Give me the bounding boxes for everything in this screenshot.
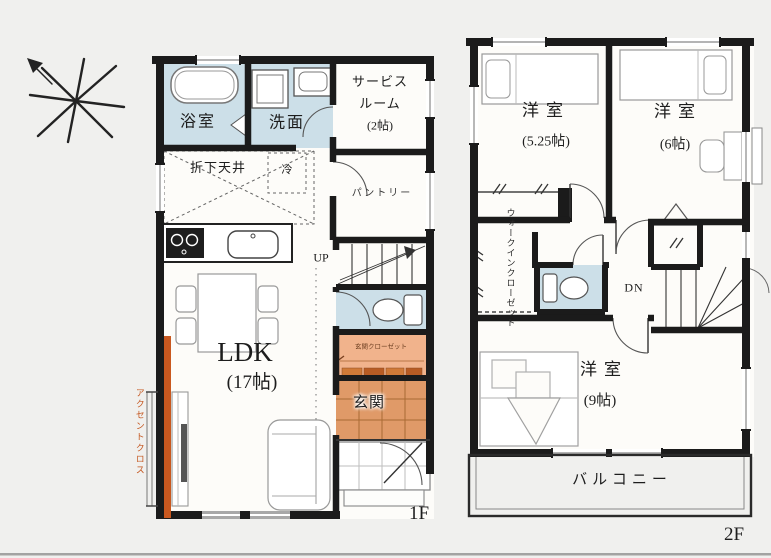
label-fridge: 冷 (282, 165, 293, 177)
room-label-bedroom3: 洋室 (580, 361, 628, 379)
label-dropped-ceiling: 折下天井 (190, 161, 246, 175)
room-label-bedroom1: 洋室 (522, 102, 570, 120)
room-label-bedroom2-size: (6帖) (660, 139, 690, 154)
room-label-bedroom1-size: (5.25帖) (522, 136, 570, 151)
room-label-washroom: 洗面 (269, 116, 305, 133)
label-stairs-down: DN (624, 282, 643, 295)
room-label-service-3: (2帖) (367, 120, 393, 133)
bed-icon-9 (480, 352, 578, 446)
floor-label-1f: 1F (409, 504, 429, 524)
room-label-bedroom3-size: (9帖) (584, 394, 617, 410)
image-edge-line (0, 553, 771, 556)
room-label-bedroom2: 洋室 (654, 103, 702, 121)
washing-machine-icon (252, 70, 288, 108)
label-accent-cloth: アクセントクロス (134, 388, 143, 476)
tv-board-icon (172, 392, 188, 506)
kitchen-counter-icon (163, 224, 292, 262)
label-stairs-up: UP (313, 252, 328, 265)
room-label-balcony: バルコニー (572, 473, 672, 489)
wic-line2: クローゼット (506, 268, 516, 328)
room-label-service-1: サービス (352, 75, 408, 89)
bathtub-icon (171, 67, 238, 103)
bed-icon-6 (620, 50, 732, 100)
label-entrance-closet: 玄関クローゼット (355, 345, 407, 352)
bed-icon-525 (482, 54, 598, 104)
compass-north-icon (27, 58, 124, 142)
room-label-service-2: ルーム (359, 97, 401, 111)
room-label-entrance: 玄関 (353, 396, 385, 412)
floorplan-image: 浴室 洗面 サービス ルーム (2帖) 折下天井 冷 パントリー UP LDK … (0, 0, 771, 558)
room-label-wic: ウォークインクローゼット (501, 208, 518, 328)
accent-cloth-stripe (164, 336, 171, 518)
wic-line1: ウォークイン (506, 208, 516, 268)
room-label-bath: 浴室 (180, 115, 216, 132)
room-label-ldk: LDK (217, 338, 273, 366)
room-label-pantry: パントリー (352, 189, 413, 200)
room-label-ldk-size: (17帖) (227, 373, 278, 393)
vanity-sink-icon (294, 68, 332, 96)
floor-label-2f: 2F (724, 525, 744, 545)
sofa-icon (268, 420, 330, 510)
